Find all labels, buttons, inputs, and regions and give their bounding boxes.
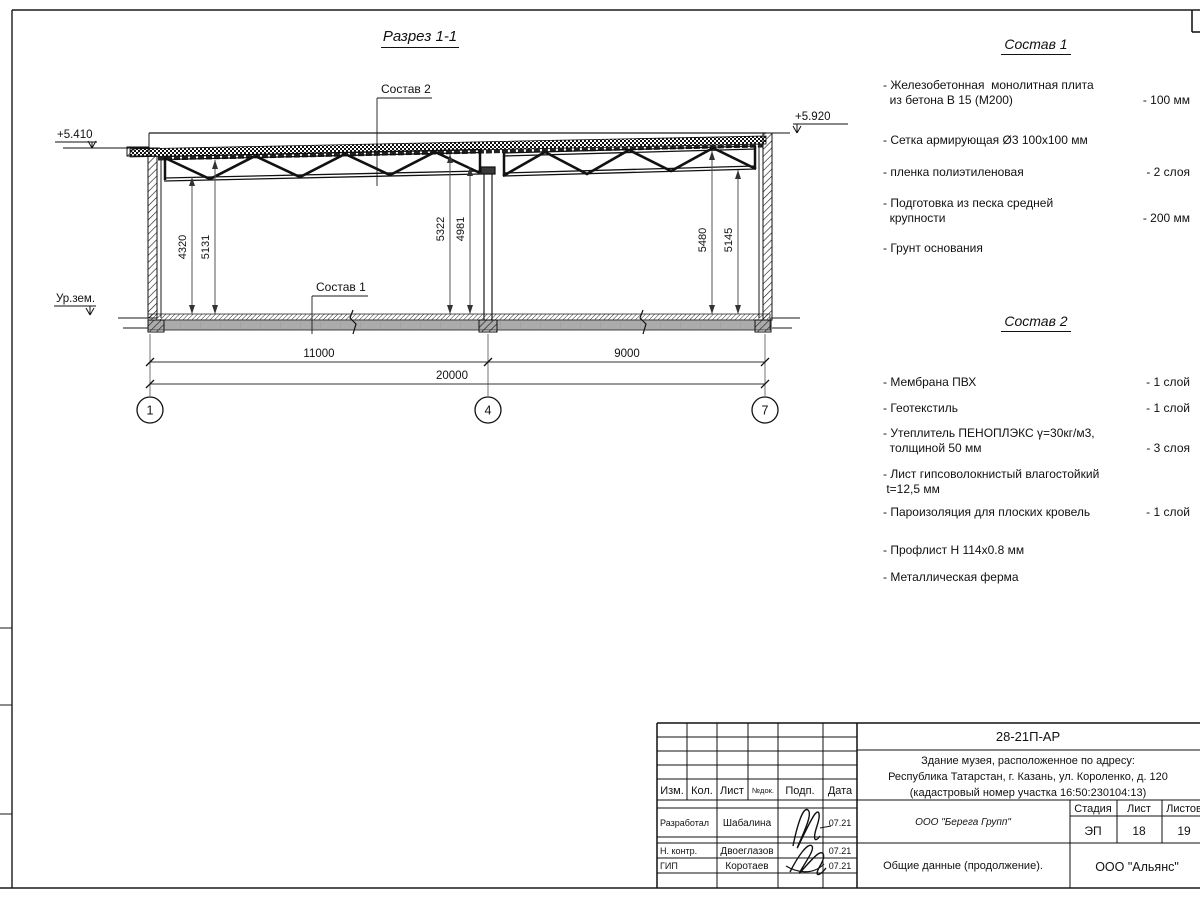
titleblock-header-row: Изм. Кол. Лист №док. Подп. Дата [660,785,853,797]
left-wall [148,156,157,318]
contractor-name: ООО "Берега Групп" [915,817,1011,828]
company-name: ООО "Альянс" [1095,860,1179,874]
svg-text:4320: 4320 [177,235,189,259]
ground-level-mark: Ур.зем. [54,293,96,315]
material-list-2-title: Состав 2 [880,313,1192,329]
sheet-label: Лист [1127,803,1151,815]
svg-text:Двоеглазов: Двоеглазов [720,846,773,857]
title-block: 28-21П-АР Здание музея, расположенное по… [657,723,1200,888]
svg-text:07.21: 07.21 [829,818,852,828]
svg-text:Кол.: Кол. [691,785,713,797]
material-name: - Профлист Н 114х0.8 мм [880,543,1192,558]
sheets-label: Листов [1166,803,1200,815]
svg-text:+5.410: +5.410 [57,129,93,141]
material-item: - Лист гипсоволокнистый влагостойкий t=1… [880,467,1192,497]
section-title: Разрез 1-1 [340,28,500,45]
svg-text:5480: 5480 [697,228,709,252]
floor-screed [148,314,770,320]
material-name: - Металлическая ферма [880,570,1192,585]
svg-text:5145: 5145 [723,228,735,252]
stage-label: Стадия [1074,803,1112,815]
blueprint-sheet: Состав 2 Состав 1 +5.410 +5.920 Ур.зем. … [0,0,1200,900]
axis-bubbles: 1 4 7 [137,397,778,423]
right-truss [503,146,756,176]
material-name: - Утеплитель ПЕНОПЛЭКС γ=30кг/м3, толщин… [880,426,1192,456]
dim-span1: 11000 [303,348,334,360]
project-name-line2: Республика Татарстан, г. Казань, ул. Кор… [888,771,1168,783]
svg-text:+5.920: +5.920 [795,111,831,123]
svg-text:4981: 4981 [455,217,467,241]
leader-label-sostav1: Состав 1 [316,280,366,294]
vertical-dimension-labels: 4320 5131 5322 4981 5480 5145 [177,217,735,259]
material-item: - Геотекстиль - 1 слой [880,401,1192,416]
project-name-line3: (кадастровый номер участка 16:50:230104:… [910,787,1147,799]
sheets-value: 19 [1177,824,1191,838]
dim-span2: 9000 [614,348,640,360]
material-item: - Утеплитель ПЕНОПЛЭКС γ=30кг/м3, толщин… [880,426,1192,456]
svg-text:Коротаев: Коротаев [725,861,768,872]
signature-scribbles [786,809,831,874]
sheet-title: Общие данные (продолжение). [883,860,1043,872]
svg-text:Подп.: Подп. [785,785,814,797]
material-name: - Лист гипсоволокнистый влагостойкий t=1… [880,467,1192,497]
svg-text:5131: 5131 [200,235,212,259]
stage-value: ЭП [1084,824,1101,838]
level-mark-right: +5.920 [766,111,848,133]
svg-text:4: 4 [485,404,492,418]
material-item: - Металлическая ферма [880,570,1192,585]
material-value: - 3 слоя [1146,441,1190,456]
svg-text:07.21: 07.21 [829,861,852,871]
material-value: - 1 слой [1146,505,1190,520]
right-wall [763,133,772,320]
material-list-2: Состав 2 - Мембрана ПВХ - 1 слой - Геоте… [880,0,1192,600]
svg-text:7: 7 [762,404,769,418]
leader-label-sostav2: Состав 2 [381,82,431,96]
material-item: - Профлист Н 114х0.8 мм [880,543,1192,558]
svg-text:№док.: №док. [752,786,774,795]
material-value: - 1 слой [1146,375,1190,390]
horizontal-dimensions: 11000 9000 20000 [146,334,769,396]
svg-text:Шабалина: Шабалина [723,817,772,829]
project-name-line1: Здание музея, расположенное по адресу: [921,755,1135,767]
svg-text:07.21: 07.21 [829,846,852,856]
doc-number: 28-21П-АР [996,729,1060,744]
dim-total: 20000 [436,370,468,382]
middle-column [481,167,495,320]
svg-text:Дата: Дата [828,785,853,797]
svg-text:Лист: Лист [720,785,744,797]
svg-text:Изм.: Изм. [660,785,684,797]
svg-text:Ур.зем.: Ур.зем. [56,293,95,305]
svg-text:Н. контр.: Н. контр. [660,846,697,856]
svg-text:ГИП: ГИП [660,861,678,871]
svg-text:5322: 5322 [435,217,447,241]
svg-text:Разработал: Разработал [660,818,709,828]
level-mark-left: +5.410 [55,129,160,148]
material-item: - Мембрана ПВХ - 1 слой [880,375,1192,390]
svg-text:1: 1 [147,404,154,418]
material-item: - Пароизоляция для плоских кровель - 1 с… [880,505,1192,520]
material-value: - 1 слой [1146,401,1190,416]
sheet-value: 18 [1132,824,1146,838]
